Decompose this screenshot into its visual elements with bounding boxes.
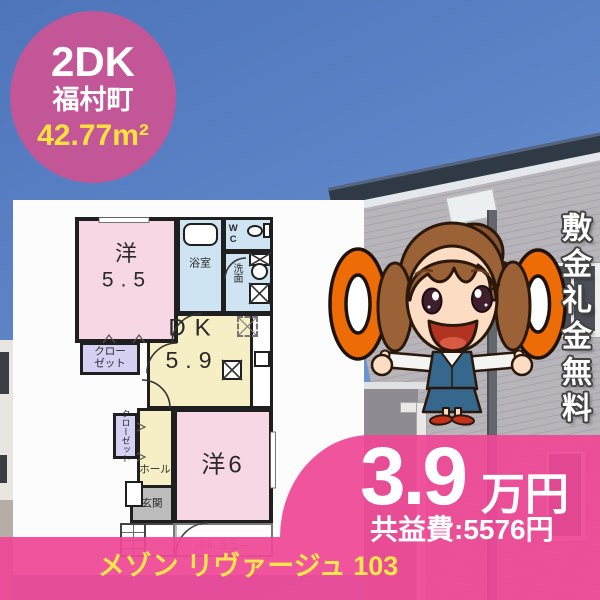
badge-layout-type: 2DK	[51, 40, 135, 84]
label-western-5-5-name: 洋	[115, 241, 137, 267]
label-dk-name: DK	[168, 315, 219, 344]
label-closet-upper-2: ゼット	[94, 358, 126, 371]
badge-area-name: 福村町	[53, 84, 134, 118]
label-toilet: WC	[227, 223, 238, 245]
rent-amount: 3.9	[360, 436, 465, 518]
label-closet-upper-1: クロー	[94, 346, 126, 359]
label-bathroom: 浴室	[189, 257, 211, 270]
label-washroom: 洗面	[230, 263, 242, 283]
label-western-5-5-size: 5.5	[102, 267, 152, 292]
common-fee: 共益費:5576円	[370, 516, 554, 544]
property-name: メゾン リヴァージュ 103	[28, 551, 468, 582]
property-badge: 2DK 福村町 42.77m²	[10, 11, 176, 183]
rent-unit: 万円	[481, 473, 569, 517]
mascot-agent-character	[352, 218, 552, 428]
label-dk-size: 5.9	[166, 347, 219, 375]
campaign-vertical-banner: 敷金礼金無料	[548, 212, 588, 432]
listing-flyer: 洋 5.5 浴室 WC 洗面 DK 5.9 クロー ゼット クローゼット ホール…	[0, 0, 600, 600]
badge-floor-area: 42.77m²	[37, 118, 149, 154]
neighbor-window	[0, 352, 9, 394]
